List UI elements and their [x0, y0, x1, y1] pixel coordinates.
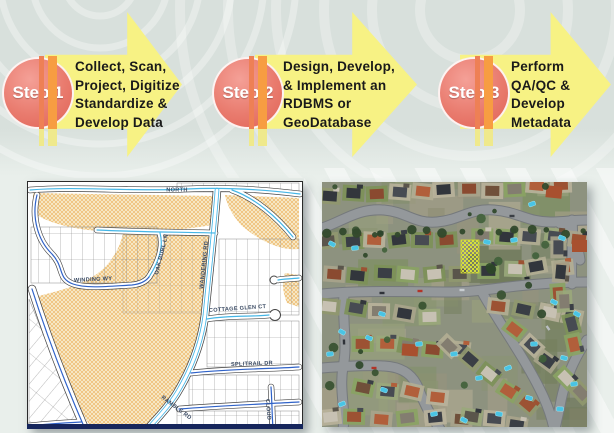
step-description-line: Collect, Scan, — [75, 58, 180, 77]
accent-stripe — [475, 56, 480, 146]
accent-stripe — [48, 56, 57, 146]
step-description-line: Project, Digitize — [75, 77, 180, 96]
step-1-description: Collect, Scan, Project, Digitize Standar… — [75, 58, 180, 132]
step-description-line: Metadata — [511, 114, 571, 133]
accent-stripe — [249, 56, 254, 146]
step-2-circle: Step 2 — [212, 57, 284, 129]
map-bottom-bar — [27, 424, 303, 429]
parcel-map-image: NORTH WINDING WY OAK BURL LN WANDERING R… — [27, 181, 303, 429]
step-description-line: Develop — [511, 95, 571, 114]
parcel-map: NORTH WINDING WY OAK BURL LN WANDERING R… — [27, 181, 303, 429]
step-1-circle: Step 1 — [2, 57, 74, 129]
accent-stripe — [39, 56, 44, 146]
accent-stripe — [258, 56, 267, 146]
aerial-photo-image — [322, 182, 587, 427]
step-description-line: Standardize & — [75, 95, 180, 114]
step-description-line: & Implement an — [283, 77, 395, 96]
step-2-description: Design, Develop, & Implement an RDBMS or… — [283, 58, 395, 132]
accent-stripe — [484, 56, 493, 146]
step-description-line: Design, Develop, — [283, 58, 395, 77]
step-description-line: Develop Data — [75, 114, 180, 133]
aerial-photo — [322, 182, 587, 427]
step-description-line: RDBMS or — [283, 95, 395, 114]
step-description-line: Perform — [511, 58, 571, 77]
step-description-line: QA/QC & — [511, 77, 571, 96]
step-description-line: GeoDatabase — [283, 114, 395, 133]
street-label-north: NORTH — [166, 188, 187, 194]
slide: Step 1 Collect, Scan, Project, Digitize … — [0, 0, 614, 433]
step-3-circle: Step 3 — [438, 57, 510, 129]
step-3-description: Perform QA/QC & Develop Metadata — [511, 58, 571, 132]
